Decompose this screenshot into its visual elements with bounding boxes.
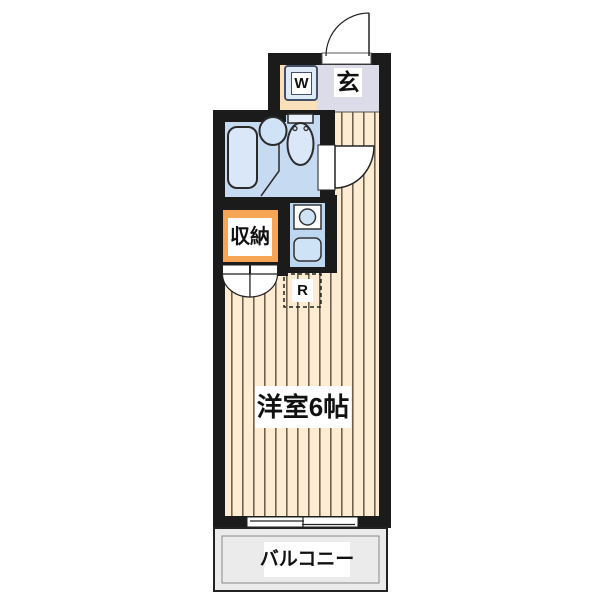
wall-right — [379, 53, 391, 528]
floor-plan-canvas: 玄 W 収納 R 洋室6帖 バルコニー — [0, 0, 600, 600]
refrigerator-label: R — [292, 279, 313, 302]
bathroom-doorway — [318, 145, 335, 190]
sliding-window — [247, 517, 358, 527]
toilet-hinge-left — [293, 127, 297, 131]
entry-threshold — [322, 53, 371, 64]
toilet-bowl — [288, 123, 314, 165]
washing-machine-label: W — [291, 72, 312, 95]
closet-door-leaf-right — [251, 265, 278, 274]
entry-door-swing — [326, 13, 369, 56]
entrance-label: 玄 — [334, 68, 362, 97]
main-room-label: 洋室6帖 — [255, 386, 351, 428]
stove-burner — [300, 209, 316, 225]
toilet-hinge-right — [304, 127, 308, 131]
bathtub — [228, 127, 257, 188]
balcony-label: バルコニー — [264, 542, 350, 577]
storage-label: 収納 — [228, 218, 272, 256]
wall-entrance-left — [268, 53, 280, 112]
toilet-tank — [288, 114, 313, 123]
kitchen-sink — [294, 238, 321, 261]
washbasin — [260, 117, 287, 145]
closet-door-leaf-left — [223, 265, 250, 274]
